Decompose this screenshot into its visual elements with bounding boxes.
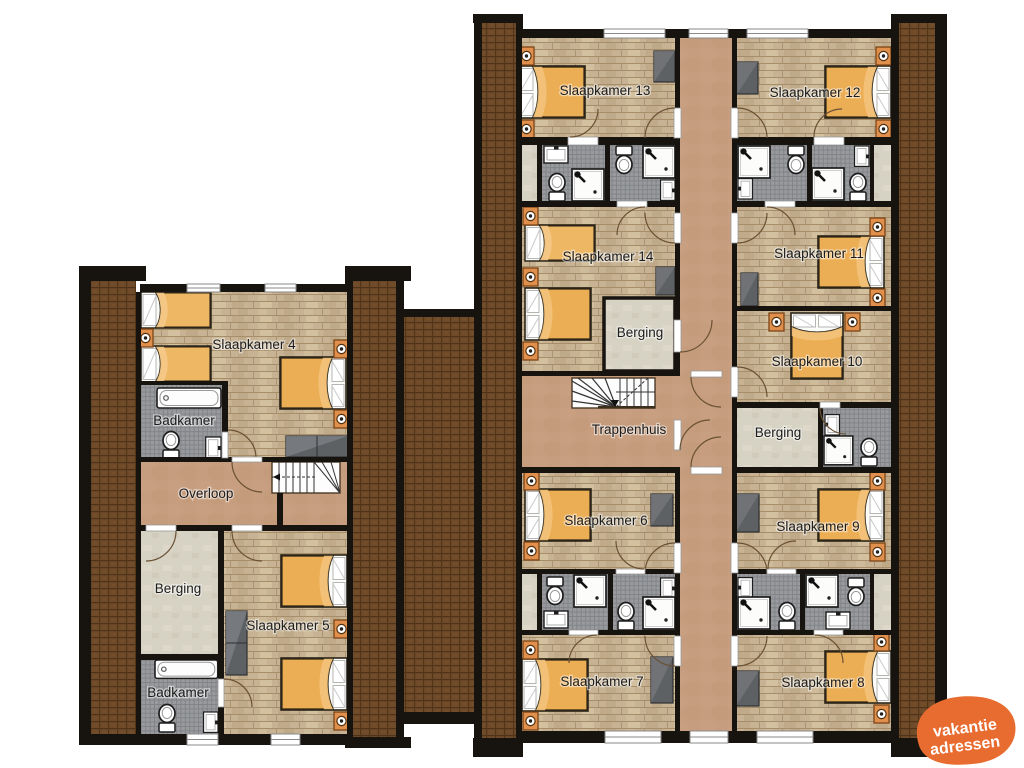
svg-text:Berging: Berging bbox=[155, 581, 202, 596]
svg-text:Slaapkamer 14: Slaapkamer 14 bbox=[563, 249, 654, 264]
svg-text:Slaapkamer 4: Slaapkamer 4 bbox=[212, 337, 296, 352]
svg-text:Slaapkamer 5: Slaapkamer 5 bbox=[246, 618, 329, 633]
svg-text:Berging: Berging bbox=[617, 325, 664, 340]
svg-text:Slaapkamer 12: Slaapkamer 12 bbox=[770, 85, 861, 100]
svg-text:Slaapkamer 8: Slaapkamer 8 bbox=[781, 675, 864, 690]
svg-text:Badkamer: Badkamer bbox=[147, 685, 209, 700]
svg-text:Overloop: Overloop bbox=[179, 486, 234, 501]
svg-text:Trappenhuis: Trappenhuis bbox=[592, 422, 667, 437]
svg-text:Badkamer: Badkamer bbox=[153, 413, 215, 428]
svg-text:Slaapkamer 13: Slaapkamer 13 bbox=[560, 83, 651, 98]
svg-text:Slaapkamer 6: Slaapkamer 6 bbox=[564, 513, 647, 528]
svg-text:Slaapkamer 11: Slaapkamer 11 bbox=[774, 246, 864, 261]
svg-text:Slaapkamer 7: Slaapkamer 7 bbox=[560, 674, 643, 689]
svg-text:Berging: Berging bbox=[755, 425, 802, 440]
svg-text:Slaapkamer 10: Slaapkamer 10 bbox=[772, 354, 863, 369]
svg-text:Slaapkamer 9: Slaapkamer 9 bbox=[776, 519, 859, 534]
